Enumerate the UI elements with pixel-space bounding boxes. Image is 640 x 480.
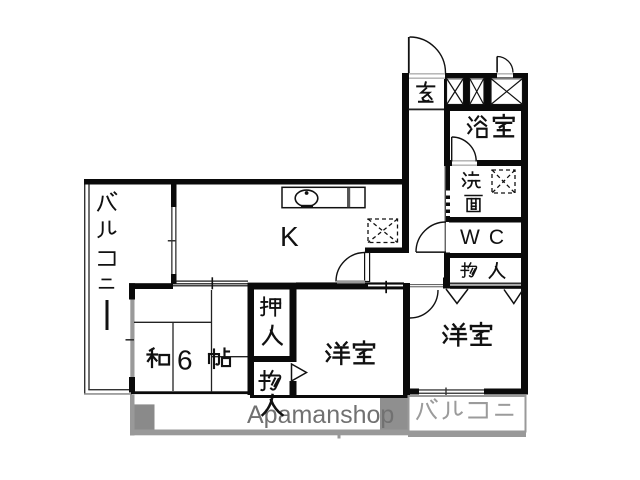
svg-text:K: K [280,221,299,252]
svg-text:WC: WC [460,226,513,249]
svg-text:6: 6 [177,345,193,376]
